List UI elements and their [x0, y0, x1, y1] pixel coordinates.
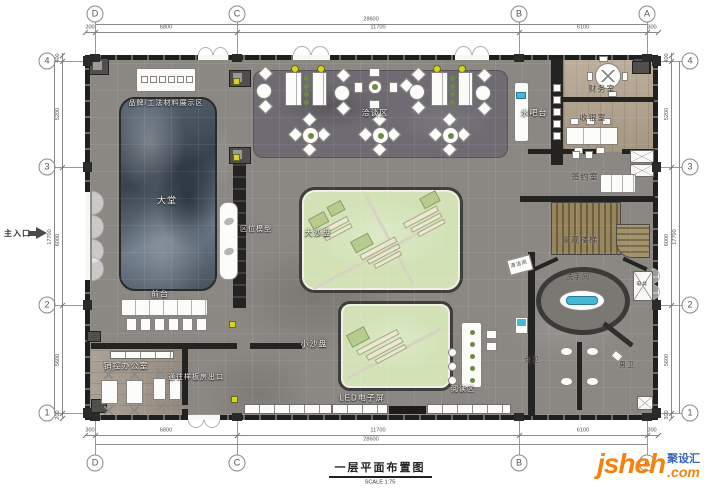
label-elec-shaft: 电井 [636, 280, 648, 287]
label-cashier: 收银室 [580, 113, 607, 124]
label-small-sandtable: 小沙盘 [301, 339, 328, 350]
title-block: 一层平面布置图 SCALE 1:75 [305, 458, 455, 486]
label-womens-wc: 女卫 [524, 355, 540, 365]
drawing-scale: SCALE 1:75 [320, 480, 440, 486]
label-restroom: 洗手间 [566, 272, 590, 282]
watermark-tld: .com [667, 465, 700, 479]
label-lobby: 大堂 [157, 194, 177, 207]
floor-plan-page: 主入口 DDCCBBAA4433221128600300680011700610… [0, 0, 725, 493]
label-brand-display: 品牌/工法材料展示区 [129, 98, 204, 108]
label-cleaning-room: 清洁间 [510, 258, 529, 269]
label-location-model: 区位模型 [240, 224, 272, 234]
label-reading: 阅读区 [451, 384, 475, 394]
label-finance: 财务室 [589, 84, 616, 95]
label-front-desk: 前台 [151, 289, 169, 300]
label-water-bar: 水吧台 [521, 108, 548, 119]
watermark: jsheh 聚设汇 .com [597, 449, 700, 479]
label-mens-wc: 男卫 [619, 360, 635, 370]
label-model-exit: 通往样板房出口 [168, 372, 224, 382]
drawing-title: 一层平面布置图 [329, 459, 432, 478]
label-big-sandtable: 大沙盘 [305, 228, 332, 239]
label-led-screen: LED电子屏 [339, 393, 385, 404]
label-negotiation: 洽谈区 [362, 108, 389, 119]
label-sales-office: 销控办公室 [104, 361, 149, 372]
label-landscape-stairs: 景观楼梯 [562, 235, 598, 246]
label-signing: 签约室 [572, 172, 599, 183]
room-label-layer: 品牌/工法材料展示区大堂洽谈区水吧台财务室收银室签约室景观楼梯区位模型大沙盘洗手… [0, 0, 725, 493]
watermark-logo: jsheh [597, 449, 665, 479]
